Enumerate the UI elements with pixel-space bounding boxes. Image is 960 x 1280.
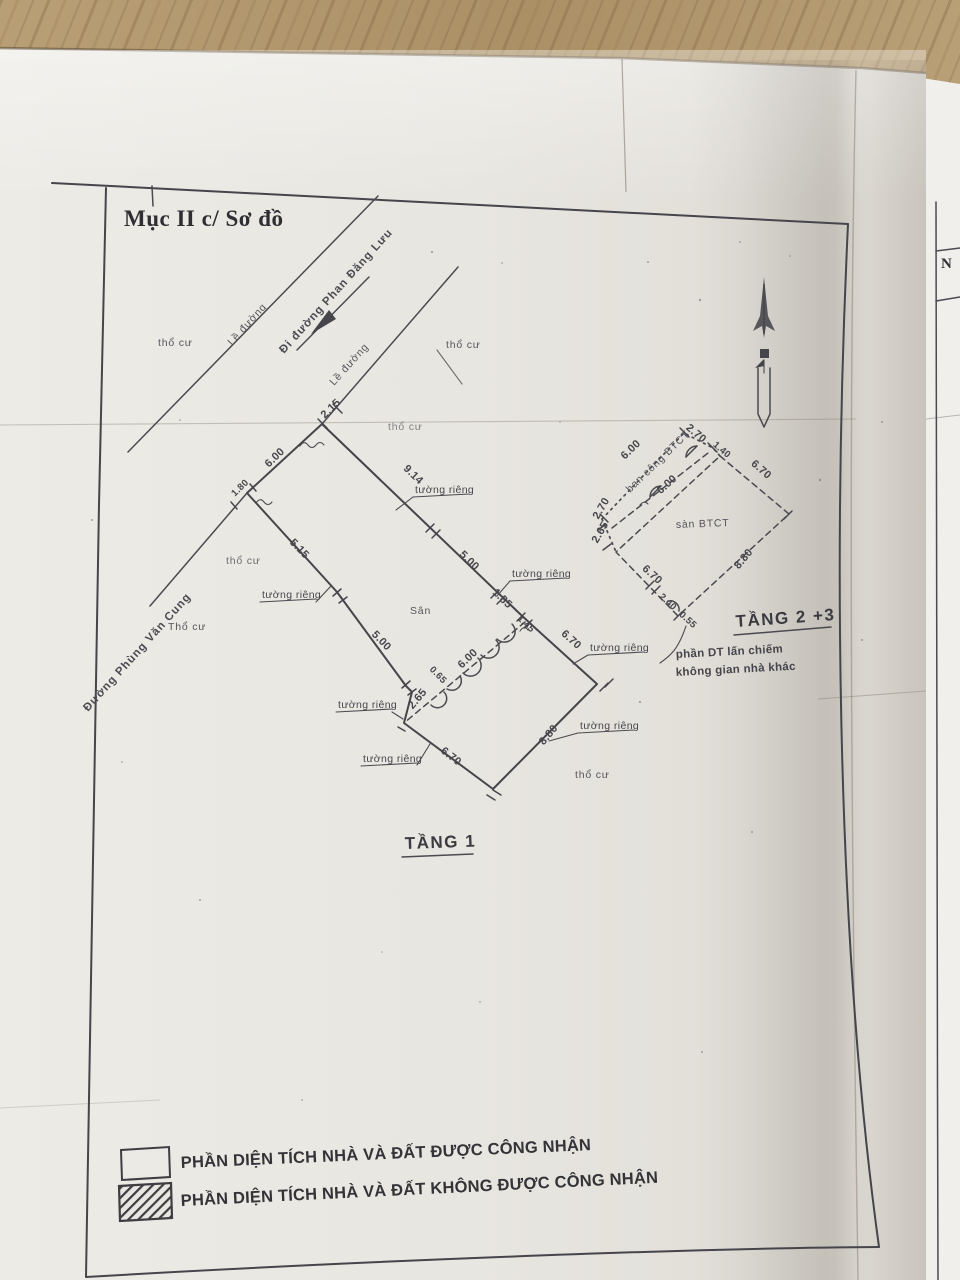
floor23-slab-label: sàn BTCT: [676, 517, 730, 531]
zone-tho-cu-1: thổ cư: [158, 337, 193, 349]
side-sheet-label: N: [941, 256, 952, 272]
second-sheet: N: [922, 78, 960, 1280]
zone-tho-cu-2: thổ cư: [446, 339, 481, 351]
legend-swatch-not-recognized: [119, 1183, 172, 1221]
page-title: Mục II c/ Sơ đồ: [124, 206, 284, 231]
callout-7: tường riêng: [260, 586, 331, 602]
zone-tho-cu-4: thổ cư: [226, 555, 261, 567]
zone-san: Sân: [410, 605, 431, 617]
scanned-cadastral-diagram: N Mục II c/ Sơ đồ: [0, 0, 960, 1280]
legend-swatch-recognized: [121, 1147, 170, 1180]
zone-tho-cu-3: thổ cư: [388, 421, 423, 433]
zone-tho-cu-6: thổ cư: [575, 769, 610, 781]
floor1-title: TẦNG 1: [404, 832, 476, 853]
zone-tho-cu-5: Thổ cư: [168, 621, 206, 633]
